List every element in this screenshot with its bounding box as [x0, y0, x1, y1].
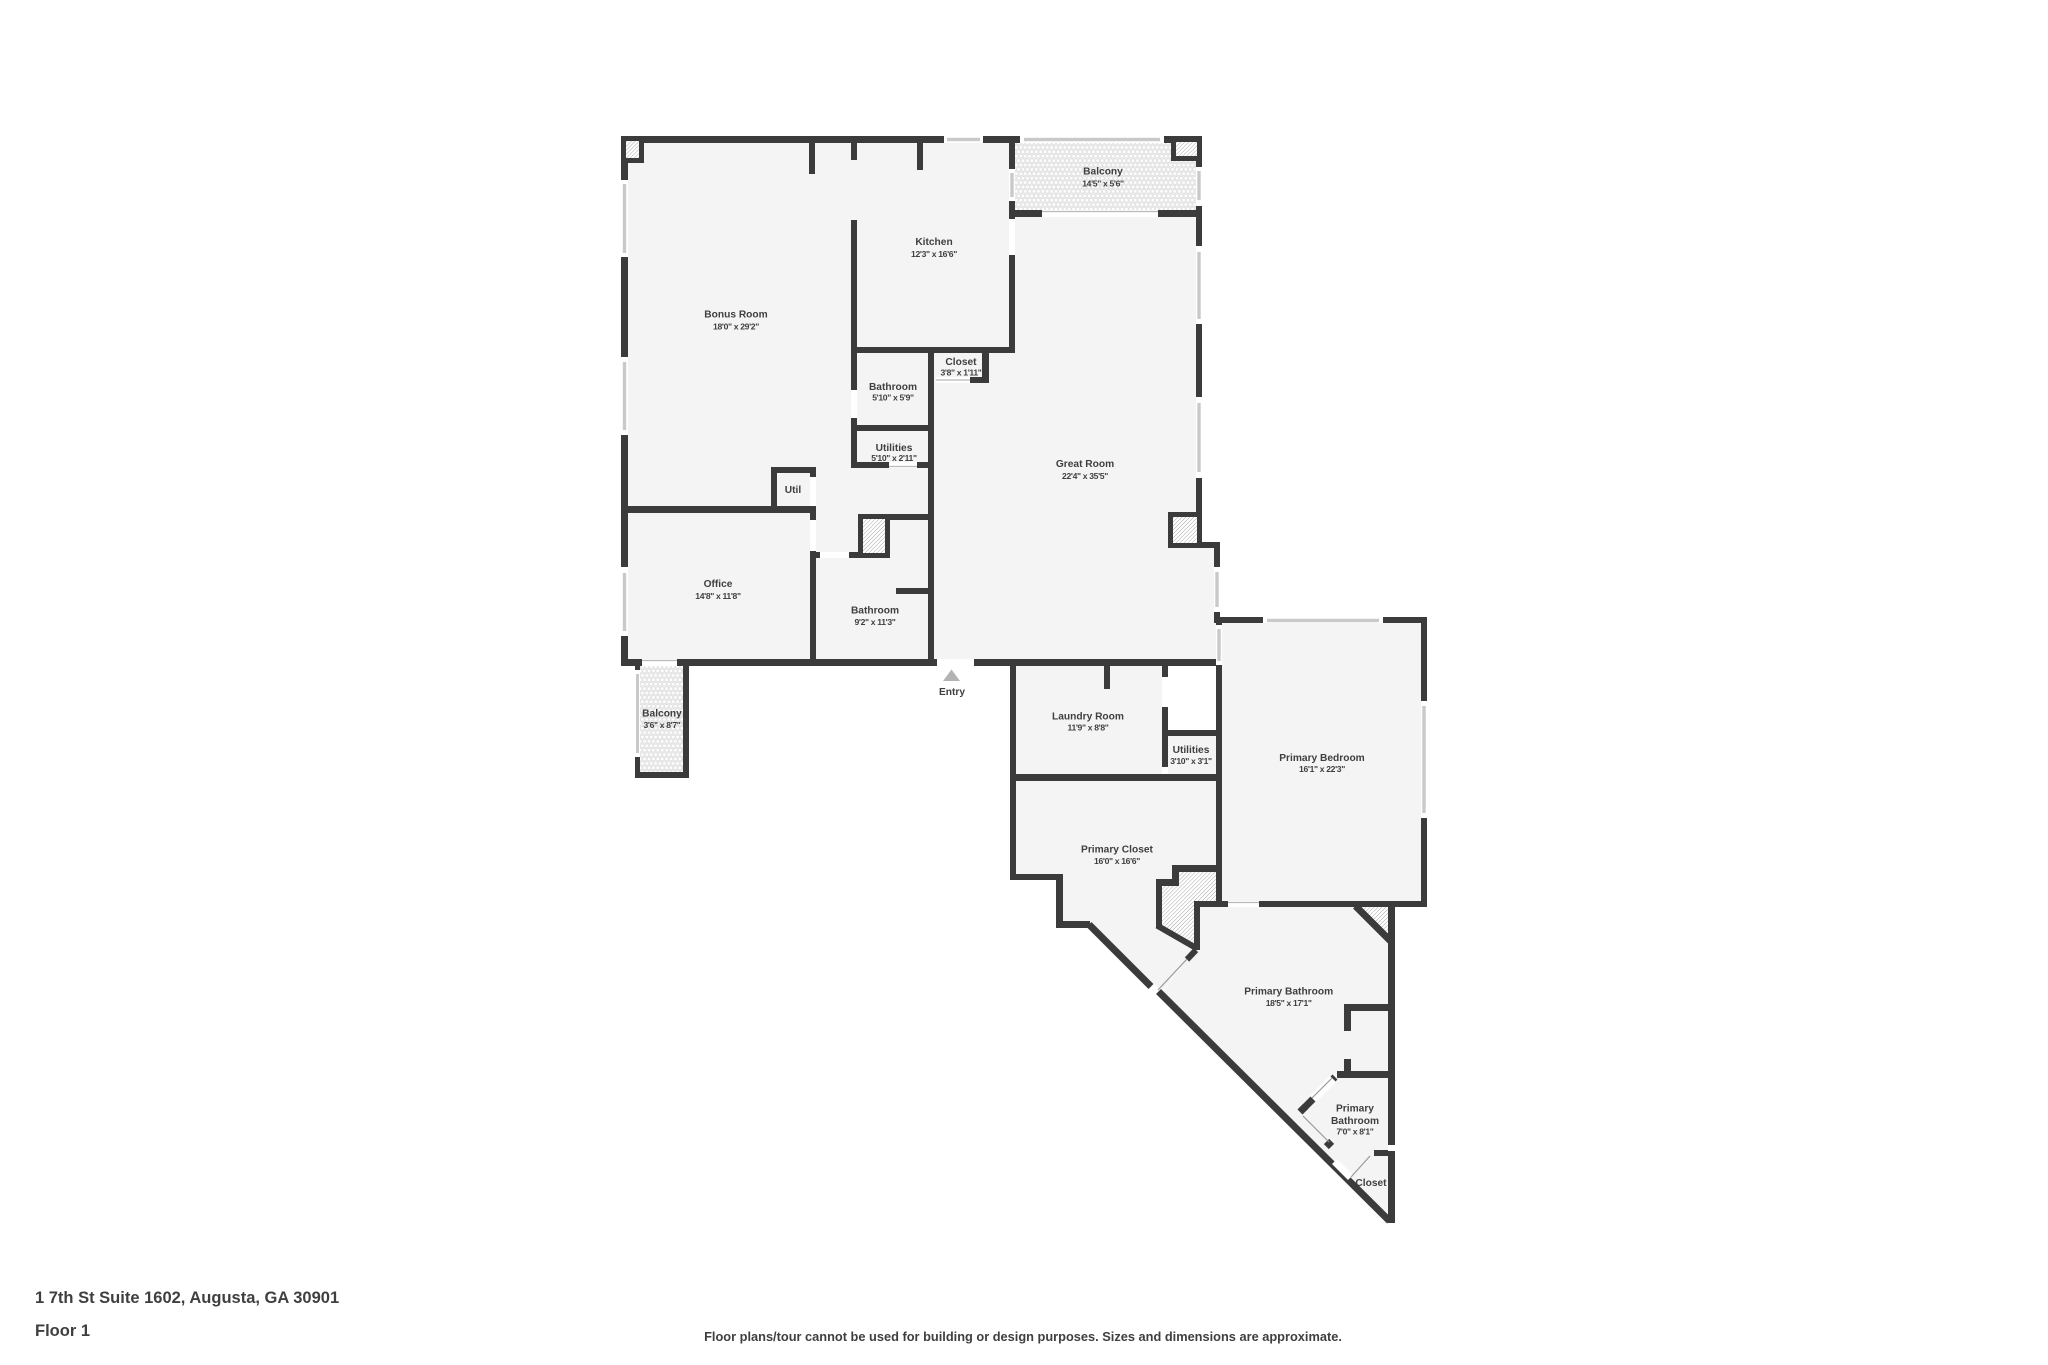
svg-text:Laundry Room: Laundry Room	[1052, 712, 1124, 723]
svg-text:3'6" x 8'7": 3'6" x 8'7"	[643, 720, 680, 730]
svg-text:Bathroom: Bathroom	[1331, 1116, 1379, 1127]
svg-text:14'5" x 5'6": 14'5" x 5'6"	[1082, 179, 1124, 189]
svg-text:Closet: Closet	[945, 357, 977, 368]
svg-text:Balcony: Balcony	[1083, 167, 1123, 178]
svg-text:Floor 1: Floor 1	[35, 1322, 90, 1340]
svg-text:14'8" x 11'8": 14'8" x 11'8"	[695, 591, 741, 601]
svg-text:3'10" x 3'1": 3'10" x 3'1"	[1170, 756, 1212, 766]
svg-text:11'9" x 8'8": 11'9" x 8'8"	[1067, 723, 1108, 733]
svg-text:Closet: Closet	[1355, 1178, 1387, 1189]
svg-text:9'2" x 11'3": 9'2" x 11'3"	[854, 617, 895, 627]
svg-text:Floor plans/tour cannot be use: Floor plans/tour cannot be used for buil…	[704, 1329, 1342, 1344]
svg-text:Office: Office	[704, 579, 733, 590]
svg-text:Primary Bedroom: Primary Bedroom	[1279, 753, 1365, 764]
svg-text:Util: Util	[785, 485, 802, 496]
svg-text:5'10" x 2'11": 5'10" x 2'11"	[871, 453, 917, 463]
svg-text:22'4" x 35'5": 22'4" x 35'5"	[1062, 471, 1108, 481]
svg-text:Primary: Primary	[1336, 1104, 1374, 1115]
svg-text:16'1" x 22'3": 16'1" x 22'3"	[1299, 764, 1345, 774]
svg-text:Entry: Entry	[939, 687, 965, 698]
svg-text:18'5" x 17'1": 18'5" x 17'1"	[1266, 998, 1312, 1008]
svg-text:7'0" x 8'1": 7'0" x 8'1"	[1336, 1127, 1373, 1137]
svg-text:18'0" x 29'2": 18'0" x 29'2"	[713, 322, 759, 332]
svg-text:Balcony: Balcony	[642, 709, 682, 720]
svg-text:Primary Closet: Primary Closet	[1081, 845, 1154, 856]
svg-text:Great Room: Great Room	[1056, 459, 1114, 470]
svg-text:5'10" x 5'9": 5'10" x 5'9"	[872, 393, 914, 403]
svg-text:Primary Bathroom: Primary Bathroom	[1244, 987, 1333, 998]
svg-text:Bathroom: Bathroom	[851, 606, 899, 617]
svg-text:Utilities: Utilities	[1173, 745, 1210, 756]
svg-text:Bathroom: Bathroom	[869, 382, 917, 393]
svg-text:16'0" x 16'6": 16'0" x 16'6"	[1094, 856, 1140, 866]
svg-text:3'8" x 1'11": 3'8" x 1'11"	[940, 368, 981, 378]
svg-text:Bonus Room: Bonus Room	[704, 310, 767, 321]
svg-text:1 7th St Suite 1602, Augusta,: 1 7th St Suite 1602, Augusta, GA 30901	[35, 1289, 339, 1307]
svg-text:12'3" x 16'6": 12'3" x 16'6"	[911, 249, 957, 259]
svg-text:Kitchen: Kitchen	[915, 237, 952, 248]
